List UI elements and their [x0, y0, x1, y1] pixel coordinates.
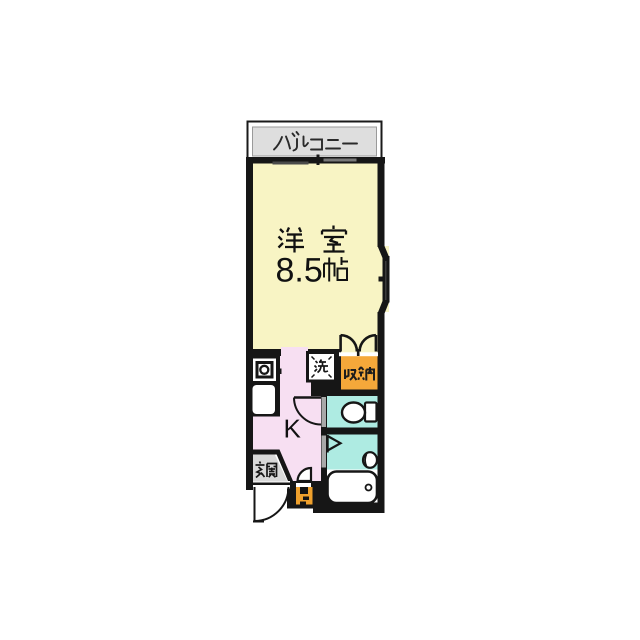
svg-text:K: K	[284, 414, 302, 444]
svg-text:8.5: 8.5	[276, 252, 323, 290]
